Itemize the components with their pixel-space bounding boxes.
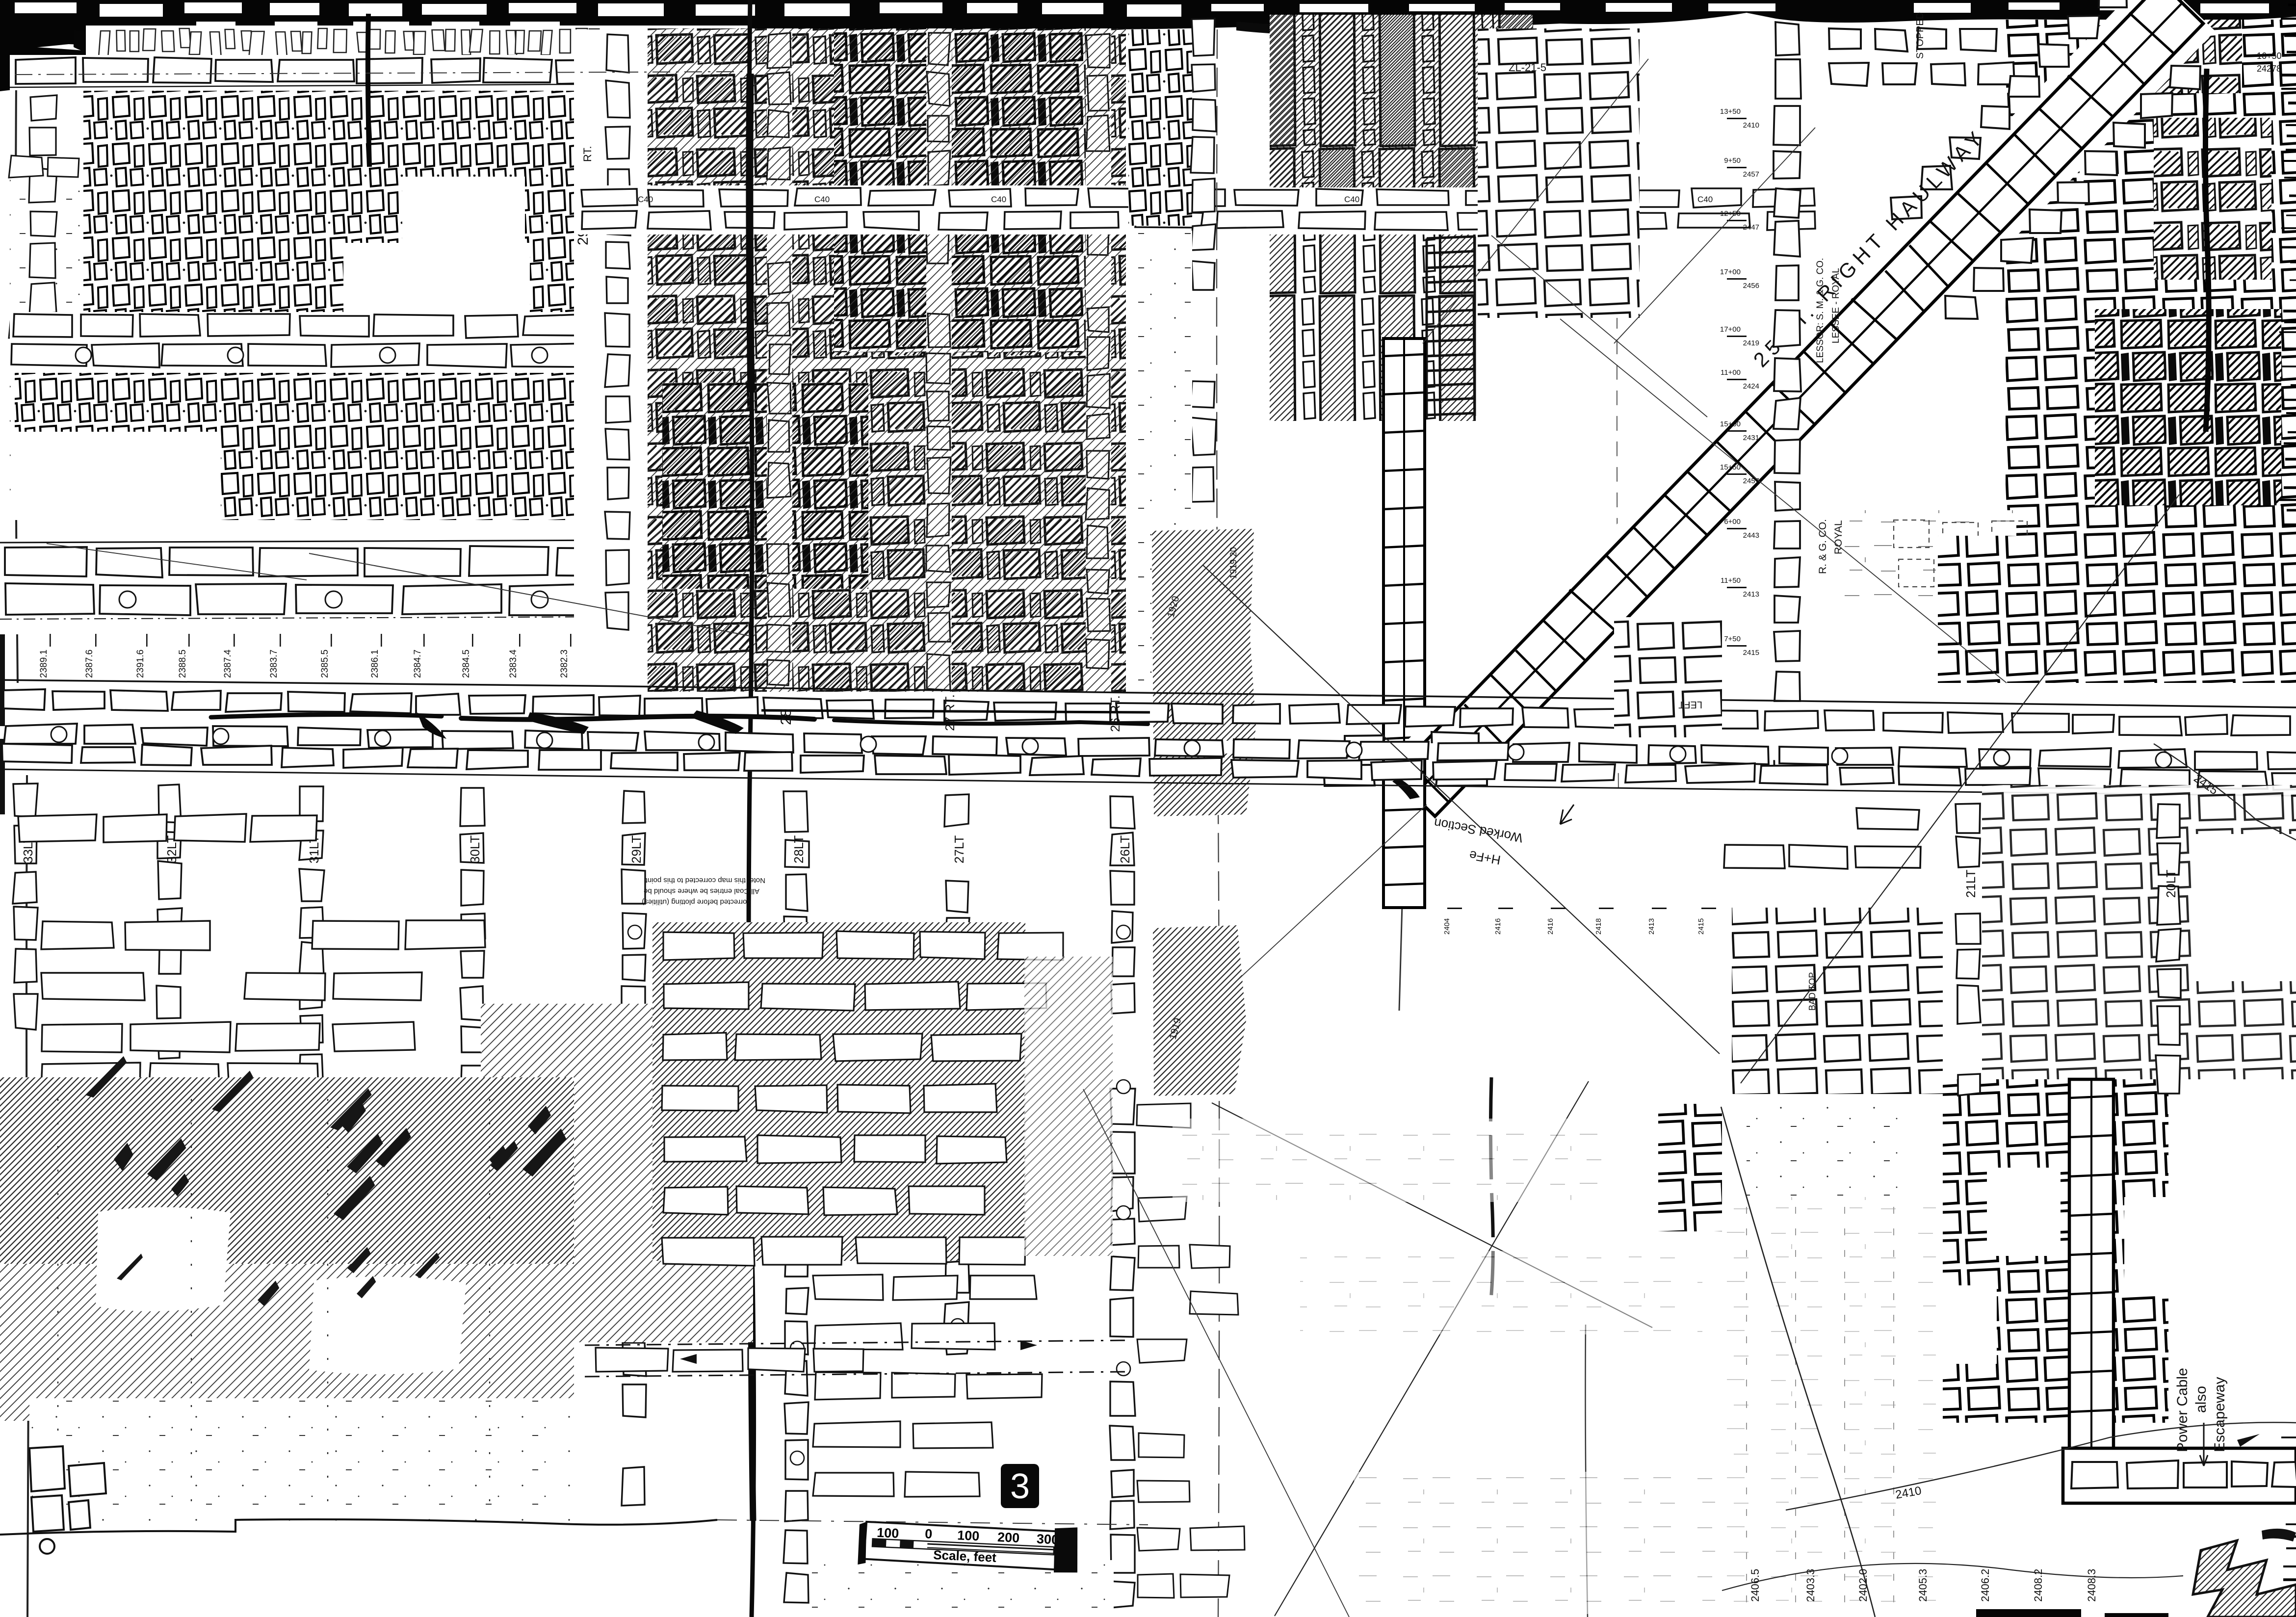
svg-text:26LT: 26LT	[1118, 835, 1132, 863]
svg-text:2403.3: 2403.3	[1804, 1569, 1817, 1602]
svg-text:0: 0	[925, 1526, 933, 1541]
svg-text:30LT: 30LT	[468, 835, 482, 863]
svg-text:C40: C40	[991, 195, 1006, 204]
svg-text:2410: 2410	[1743, 121, 1759, 130]
svg-text:2387.4: 2387.4	[223, 649, 233, 678]
svg-text:also: also	[2193, 1386, 2209, 1413]
svg-text:17+00: 17+00	[1720, 325, 1741, 334]
svg-text:21LT: 21LT	[1963, 870, 1978, 898]
svg-text:29LT: 29LT	[629, 835, 644, 863]
svg-text:2404: 2404	[1443, 918, 1451, 935]
svg-text:2383.7: 2383.7	[269, 650, 279, 678]
svg-text:2443: 2443	[1743, 531, 1759, 540]
svg-text:Scale, feet: Scale, feet	[933, 1547, 997, 1565]
svg-text:LEFT: LEFT	[1678, 699, 1702, 710]
svg-text:3: 3	[1010, 1467, 1030, 1506]
svg-text:2402.0: 2402.0	[1857, 1569, 1869, 1602]
svg-text:Power Cable: Power Cable	[2174, 1368, 2191, 1452]
svg-text:13+50: 13+50	[1720, 107, 1741, 116]
svg-text:2416: 2416	[1494, 918, 1502, 935]
svg-text:2388.5: 2388.5	[178, 650, 188, 678]
svg-text:11+00: 11+00	[1721, 368, 1741, 377]
svg-text:24278: 24278	[2257, 64, 2281, 74]
svg-text:2413: 2413	[1647, 918, 1656, 935]
svg-text:2383.4: 2383.4	[508, 649, 519, 678]
svg-text:2413: 2413	[1743, 590, 1759, 599]
svg-text:2419: 2419	[1743, 339, 1759, 347]
svg-text:200: 200	[997, 1530, 1019, 1545]
svg-text:2418: 2418	[1594, 918, 1603, 935]
svg-text:1919 20: 1919 20	[1228, 547, 1238, 579]
svg-text:C40: C40	[814, 195, 830, 204]
svg-text:LESSEE - ROYAL: LESSEE - ROYAL	[1831, 268, 1841, 343]
svg-text:2406.2: 2406.2	[1979, 1569, 1991, 1602]
svg-text:2408.3: 2408.3	[2086, 1569, 2098, 1602]
svg-text:2415: 2415	[1697, 918, 1705, 935]
svg-text:2447: 2447	[1743, 223, 1759, 232]
svg-text:2405.3: 2405.3	[1917, 1569, 1929, 1602]
svg-text:2389.1: 2389.1	[39, 650, 49, 678]
svg-text:15+00: 15+00	[1720, 420, 1741, 428]
svg-text:11+50: 11+50	[1721, 576, 1741, 585]
svg-text:R. & G. CO.: R. & G. CO.	[1817, 519, 1828, 574]
svg-text:2384.5: 2384.5	[461, 650, 471, 678]
svg-text:Escapeway: Escapeway	[2212, 1377, 2228, 1452]
svg-text:2386.1: 2386.1	[370, 650, 380, 678]
svg-text:2424: 2424	[1743, 382, 1759, 391]
svg-text:LESSOR: S. M. & G. CO.: LESSOR: S. M. & G. CO.	[1815, 258, 1826, 363]
svg-text:2385.5: 2385.5	[320, 650, 330, 678]
svg-text:28LT: 28LT	[791, 835, 806, 863]
svg-text:RT.: RT.	[581, 146, 594, 162]
svg-text:9+50: 9+50	[1724, 156, 1741, 165]
svg-text:7+50: 7+50	[1724, 635, 1741, 643]
svg-text:26 RT.: 26 RT.	[1108, 695, 1122, 732]
svg-text:15+50: 15+50	[1720, 463, 1741, 471]
svg-text:C40: C40	[1697, 195, 1713, 204]
svg-text:2431: 2431	[1743, 434, 1759, 442]
svg-text:2382.3: 2382.3	[559, 650, 570, 678]
svg-text:100: 100	[957, 1528, 980, 1543]
svg-text:6+00: 6+00	[1724, 518, 1741, 526]
svg-text:STOPPED: STOPPED	[1915, 12, 1926, 59]
svg-text:2391.6: 2391.6	[135, 650, 146, 678]
svg-text:corrected before plotting (uti: corrected before plotting (utilities)	[642, 898, 751, 906]
svg-text:2406.5: 2406.5	[1749, 1569, 1761, 1602]
svg-text:28: 28	[778, 709, 794, 725]
svg-text:2384.7: 2384.7	[413, 650, 423, 678]
svg-text:C40: C40	[638, 195, 653, 204]
svg-text:All Coal entries be where shou: All Coal entries be where should be	[644, 887, 759, 895]
svg-text:2416: 2416	[1546, 918, 1555, 935]
svg-text:2457: 2457	[1743, 170, 1759, 179]
svg-text:27LT: 27LT	[952, 835, 966, 863]
svg-text:2387.6: 2387.6	[84, 650, 95, 678]
svg-text:ZL-21-5: ZL-21-5	[1509, 61, 1546, 74]
svg-text:2457: 2457	[1743, 477, 1759, 485]
svg-text:27 RT.: 27 RT.	[942, 694, 957, 731]
svg-text:17+00: 17+00	[1720, 268, 1741, 276]
svg-text:20LT: 20LT	[2164, 870, 2178, 898]
svg-text:Note: this map corrected to th: Note: this map corrected to this point	[645, 876, 765, 885]
svg-text:16+50: 16+50	[2257, 51, 2282, 61]
svg-text:2456: 2456	[1743, 282, 1759, 290]
svg-text:C40: C40	[1344, 195, 1359, 204]
svg-text:2415: 2415	[1743, 649, 1759, 657]
